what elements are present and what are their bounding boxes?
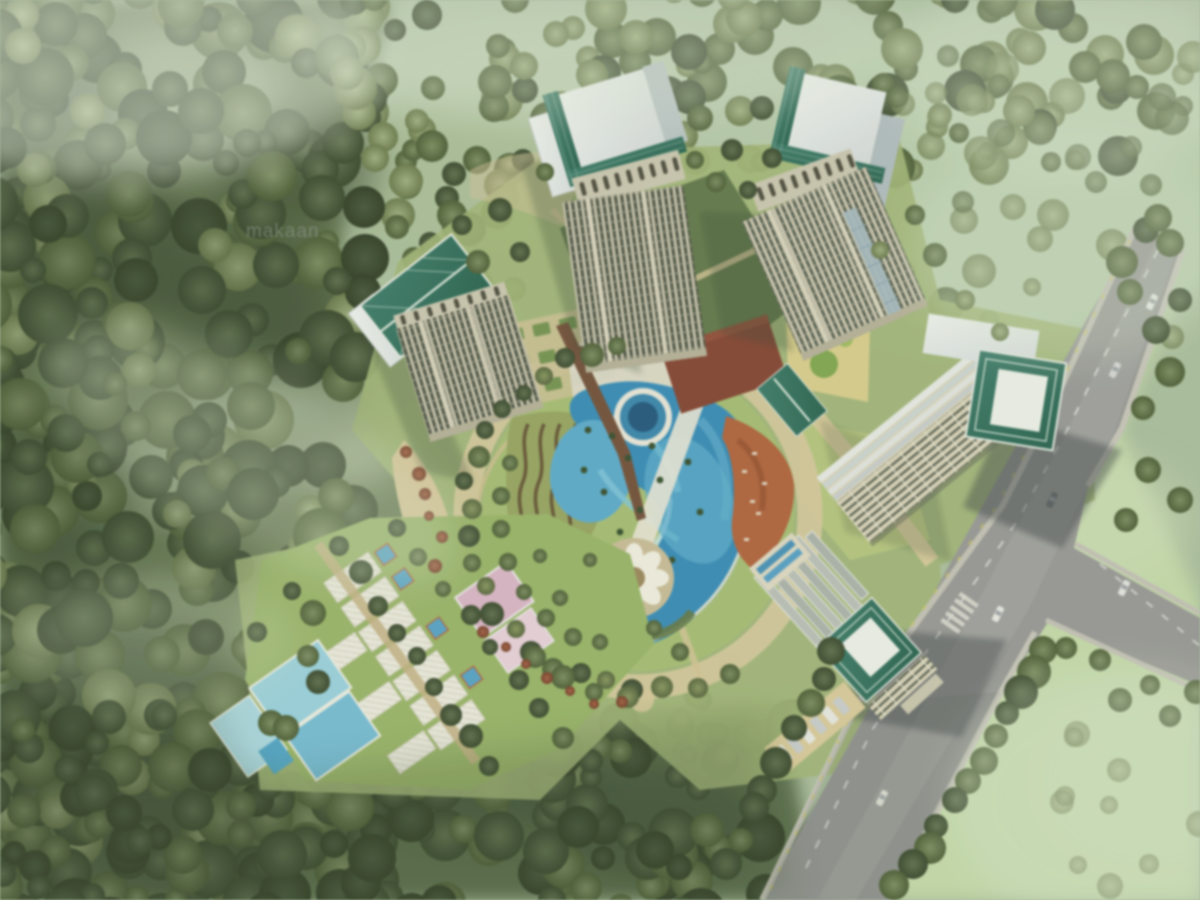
svg-text:makaan: makaan (246, 221, 320, 242)
